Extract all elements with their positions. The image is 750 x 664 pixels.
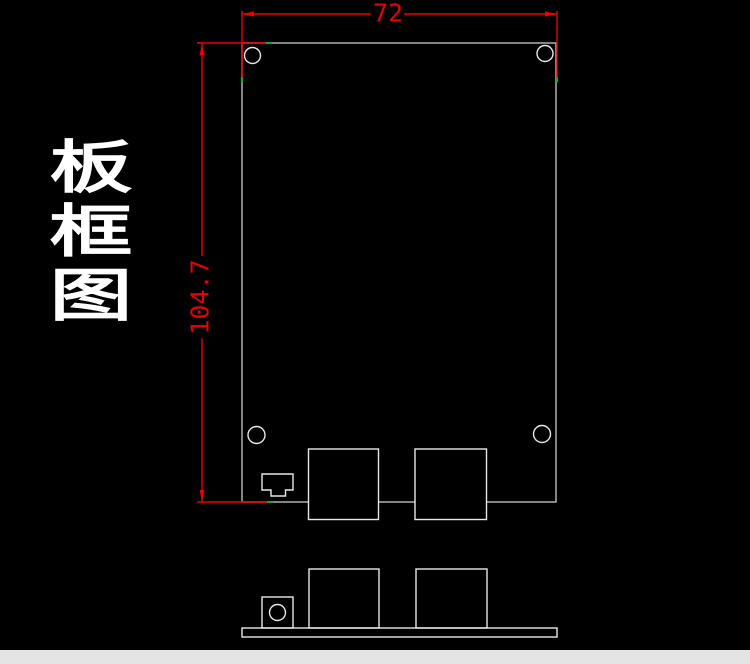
height-dim-arrow-bottom (200, 490, 205, 502)
board-outline (242, 43, 556, 502)
top-view-components (262, 449, 487, 520)
snap-markers (242, 43, 557, 502)
pcb-slab-side-view (242, 628, 557, 637)
height-dimension: 104.7 (186, 43, 274, 502)
mounting-hole-bottom-right (534, 426, 551, 443)
board-top-view (242, 43, 556, 502)
width-dimension-label: 72 (373, 0, 403, 28)
usb-connector-side-view (262, 597, 293, 628)
cad-drawing: 72 104.7 (0, 0, 750, 664)
width-dim-arrow-right (545, 11, 557, 16)
height-dimension-label: 104.7 (186, 259, 215, 334)
page-bottom-strip (0, 650, 750, 664)
mounting-hole-top-left (245, 48, 261, 64)
width-dim-arrow-left (242, 11, 254, 16)
connector-1-side-view (309, 569, 379, 628)
connector-1-top-view (309, 449, 379, 520)
board-side-view (242, 569, 557, 637)
usb-port-opening (270, 605, 286, 621)
mounting-holes (245, 46, 554, 444)
connector-2-top-view (415, 449, 487, 520)
mounting-hole-bottom-left (248, 427, 265, 444)
width-dimension: 72 (242, 0, 557, 81)
mounting-hole-top-right (537, 46, 553, 62)
height-dim-arrow-top (200, 43, 205, 55)
connector-2-side-view (416, 569, 487, 628)
usb-connector-top-view (262, 474, 293, 496)
cad-drawing-viewport: 板 框 图 72 (0, 0, 750, 664)
